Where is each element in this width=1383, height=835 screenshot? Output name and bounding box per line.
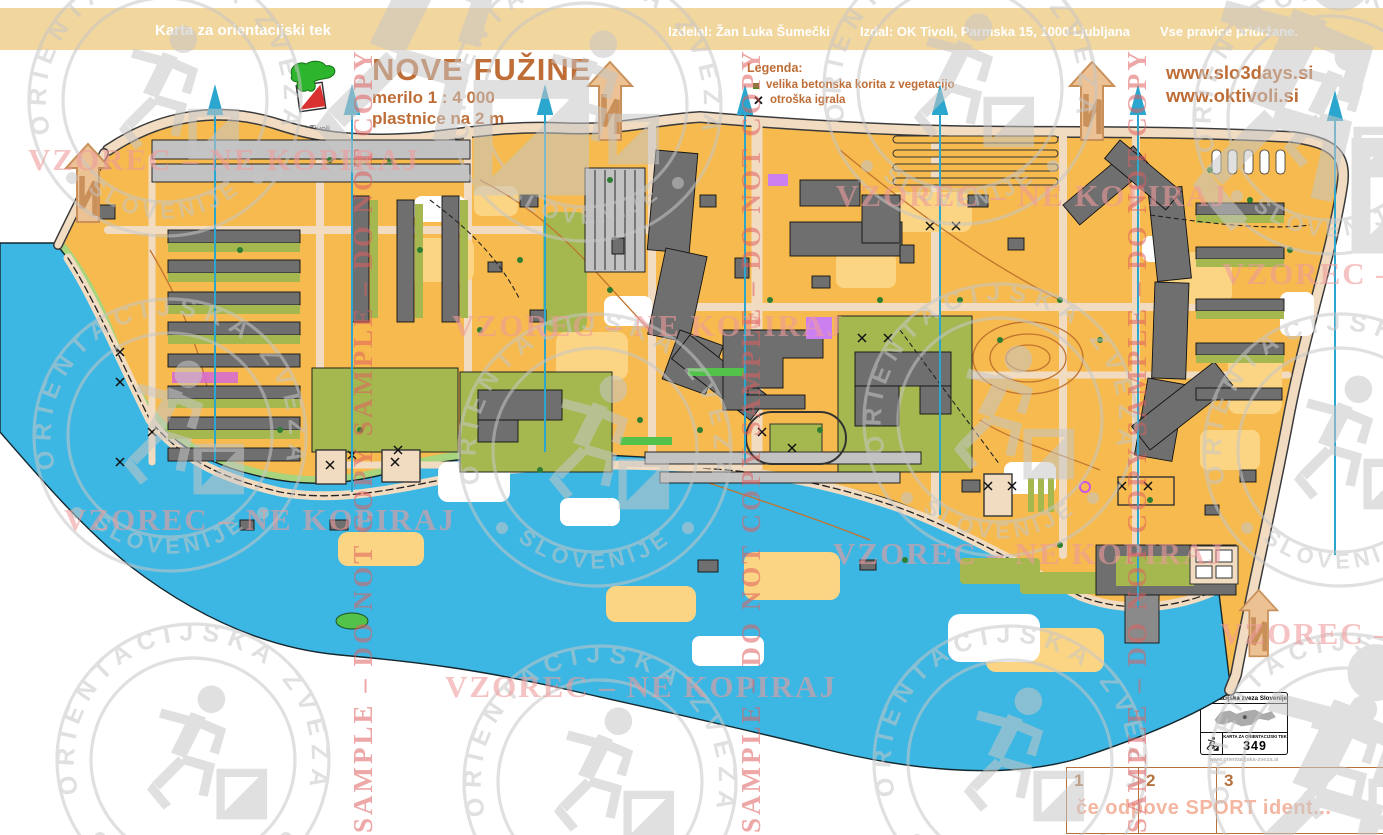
credits: Izdelal: Žan Luka Šumečki Izdal: OK Tivo… xyxy=(668,24,1298,39)
website-slo3days: www.slo3days.si xyxy=(1166,61,1313,84)
vzorec-watermark: VZOREC – NE KOPIRAJ xyxy=(452,308,844,343)
slovenia-map-icon xyxy=(1201,704,1287,733)
yard-strips xyxy=(168,200,1284,586)
orienteering-runner-icon xyxy=(1201,733,1223,754)
legend-item-label: otroška igrala xyxy=(770,93,845,108)
corridor-strips xyxy=(893,136,1058,185)
riverbank-vegetation xyxy=(55,243,520,483)
federation-name: Orientacijska zveza Slovenije xyxy=(1201,693,1287,704)
roads-layer xyxy=(58,115,1343,690)
north-arrow-icon xyxy=(588,62,632,140)
map-title: NOVE FUŽINE xyxy=(372,53,591,87)
club-name-line2: Ljubljana xyxy=(282,134,342,143)
box-number: 2 xyxy=(1139,768,1216,791)
sample-watermarks-en: SAMPLE – DO NOT COPY SAMPLE – DO NOT COP… xyxy=(348,48,1152,833)
registration-info: KARTA ZA ORIENTACIJSKI TEK 349 xyxy=(1223,733,1287,754)
legend-item-label: velika betonska korita z vegetacijo xyxy=(766,78,955,93)
north-arrow-icon xyxy=(1070,62,1114,140)
light-buildings-layer xyxy=(152,140,921,483)
special-features xyxy=(172,174,1090,492)
credit-rights: Vse pravice pridržane. xyxy=(1160,24,1298,39)
legend: Legenda: velika betonska korita z vegeta… xyxy=(747,61,955,108)
map-sheet: Karta za orientacijski tek Izdelal: Žan … xyxy=(0,0,1383,835)
pools xyxy=(1196,550,1232,578)
garage-bays xyxy=(1212,150,1285,174)
club-logo: OK Tivoli Ljubljana xyxy=(282,58,342,143)
map-artwork xyxy=(0,115,1343,771)
north-arrow-icon xyxy=(1240,590,1277,656)
north-arrow-icon xyxy=(66,144,110,222)
x-cross-icon: ✕ xyxy=(753,93,763,108)
vzorec-watermark: VZOREC – NE KOPIRAJ xyxy=(445,669,837,704)
land-area xyxy=(55,115,1343,692)
vzorec-watermark: VZOREC – NE KOPIRAJ xyxy=(28,142,420,177)
vzorec-watermark: VZOREC – NE KOPIRAJ xyxy=(836,178,1228,213)
website-oktivoli: www.oktivoli.si xyxy=(1166,84,1313,107)
legend-heading: Legenda: xyxy=(747,61,955,75)
contour-interval: plastnice na 2 m xyxy=(372,108,591,129)
path-lines xyxy=(430,200,1310,465)
north-lines xyxy=(208,88,1342,608)
title-block: NOVE FUŽINE merilo 1 : 4 000 plastnice n… xyxy=(372,53,591,150)
sample-watermarks-si: VZOREC – NE KOPIRAJ VZOREC – NE KOPIRAJ … xyxy=(28,142,1383,704)
sportident-note: če odpove SPORT ident... xyxy=(1076,797,1331,820)
sample-column: SAMPLE – DO NOT COPY SAMPLE – DO NOT COP… xyxy=(348,48,378,833)
trees-layer xyxy=(237,157,1293,563)
club-logo-emblem xyxy=(284,58,340,120)
map-state: stanje: maj 2018 xyxy=(372,129,591,150)
river xyxy=(0,243,1231,771)
green-square-icon xyxy=(753,83,759,89)
map-number: 349 xyxy=(1223,740,1287,753)
buildings-layer xyxy=(95,140,1284,643)
registration-card-bottom: KARTA ZA ORIENTACIJSKI TEK 349 xyxy=(1201,733,1287,754)
watermark-layer xyxy=(24,0,1383,835)
river-island xyxy=(336,613,368,629)
sample-column: SAMPLE – DO NOT COPY SAMPLE – DO NOT COP… xyxy=(1122,48,1152,833)
credit-publisher: Izdal: OK Tivoli, Parmska 15, 1000 Ljubl… xyxy=(860,24,1130,39)
contour-lines xyxy=(150,150,1100,540)
vzorec-watermark: VZOREC – NE KOPIRAJ xyxy=(1222,256,1383,291)
box-number: 1 xyxy=(1067,768,1138,791)
open-ground-patches xyxy=(338,186,1314,672)
legend-item-playground: ✕ otroška igrala xyxy=(753,93,955,108)
registration-card: Orientacijska zveza Slovenije KARTA ZA O… xyxy=(1200,692,1288,763)
federation-website: www.orientacijska-zveza.si xyxy=(1200,757,1288,763)
north-arrow-icons xyxy=(66,62,1277,656)
box-number: 3 xyxy=(1217,768,1383,791)
legend-item-planters: velika betonska korita z vegetacijo xyxy=(753,78,955,93)
industrial-roof-lines xyxy=(595,170,635,270)
sports-facilities xyxy=(316,412,1238,584)
playground-marks xyxy=(116,222,1152,490)
sample-column: SAMPLE – DO NOT COPY SAMPLE – DO NOT COP… xyxy=(736,48,766,833)
orienteering-map: ORIENTACIJSKA ZVEZA SLOVENIJE xyxy=(0,0,1383,835)
registration-card-box: Orientacijska zveza Slovenije KARTA ZA O… xyxy=(1200,692,1288,755)
vzorec-watermark: VZOREC – NE KOPIRAJ xyxy=(1220,616,1383,651)
dragon-icon xyxy=(291,61,335,91)
map-kind-label: Karta za orientacijski tek xyxy=(155,22,331,39)
vegetation-areas xyxy=(312,212,1116,594)
vzorec-watermark: VZOREC – NE KOPIRAJ xyxy=(833,536,1225,571)
map-scale: merilo 1 : 4 000 xyxy=(372,87,591,108)
credit-author: Izdelal: Žan Luka Šumečki xyxy=(668,24,830,39)
website-links: www.slo3days.si www.oktivoli.si xyxy=(1166,61,1313,107)
vzorec-watermark: VZOREC – NE KOPIRAJ xyxy=(64,502,456,537)
